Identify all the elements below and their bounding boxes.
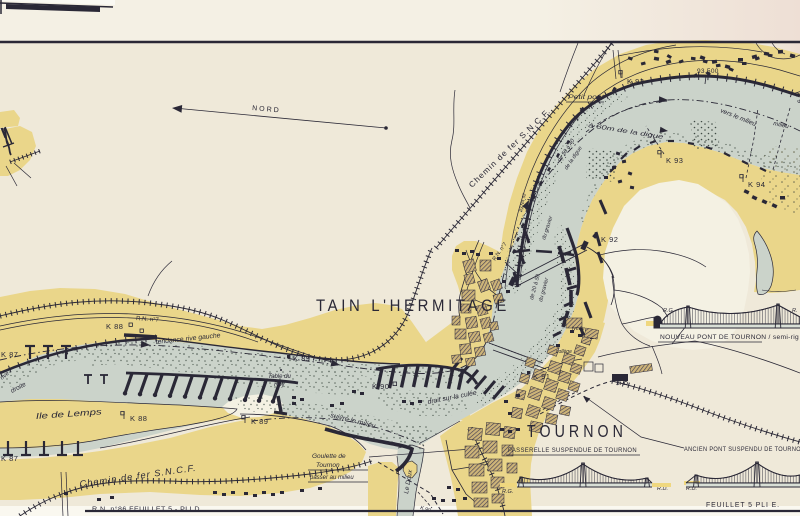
svg-text:lycée: lycée: [572, 326, 585, 332]
svg-text:Goulette de: Goulette de: [312, 453, 346, 460]
svg-text:K 89: K 89: [293, 354, 310, 363]
svg-text:TOURNON: TOURNON: [527, 421, 627, 441]
svg-text:NOUVEAU PONT DE TOURNON / semi: NOUVEAU PONT DE TOURNON / semi-rig: [660, 334, 799, 341]
svg-text:Petit pont: Petit pont: [568, 94, 606, 101]
svg-text:PASSERELLE SUSPENDUE DE TOURNO: PASSERELLE SUSPENDUE DE TOURNON: [508, 447, 637, 454]
svg-text:K 89: K 89: [251, 417, 268, 426]
svg-text:Table du: Table du: [268, 374, 291, 380]
svg-text:Tournon: Tournon: [316, 462, 340, 469]
svg-text:R.G.: R.G.: [502, 489, 513, 495]
svg-text:K 88: K 88: [106, 322, 123, 331]
svg-text:collège: collège: [556, 349, 572, 355]
svg-text:K 87: K 87: [1, 454, 18, 463]
svg-text:K 93: K 93: [666, 156, 683, 165]
svg-text:93.500: 93.500: [697, 68, 719, 75]
svg-text:K 91: K 91: [533, 372, 550, 381]
svg-text:K 90: K 90: [372, 382, 389, 391]
svg-text:R.N. n°86 FEUILLET 5 - PLI D: R.N. n°86 FEUILLET 5 - PLI D: [92, 505, 200, 513]
svg-text:K 94: K 94: [748, 180, 765, 189]
svg-text:FEUILLET 5 PLI E.: FEUILLET 5 PLI E.: [706, 500, 780, 509]
svg-text:K 88: K 88: [130, 414, 147, 423]
svg-text:passer au milieu: passer au milieu: [309, 475, 354, 481]
svg-text:ANCIEN PONT SUSPENDU DE TOURNO: ANCIEN PONT SUSPENDU DE TOURNO: [684, 446, 800, 453]
svg-text:TAIN L'HERMITAGE: TAIN L'HERMITAGE: [316, 297, 510, 315]
svg-text:K 87: K 87: [1, 350, 18, 359]
svg-text:Roy: Roy: [274, 382, 286, 388]
svg-text:K 93: K 93: [627, 77, 644, 86]
svg-text:K 92: K 92: [601, 235, 618, 244]
